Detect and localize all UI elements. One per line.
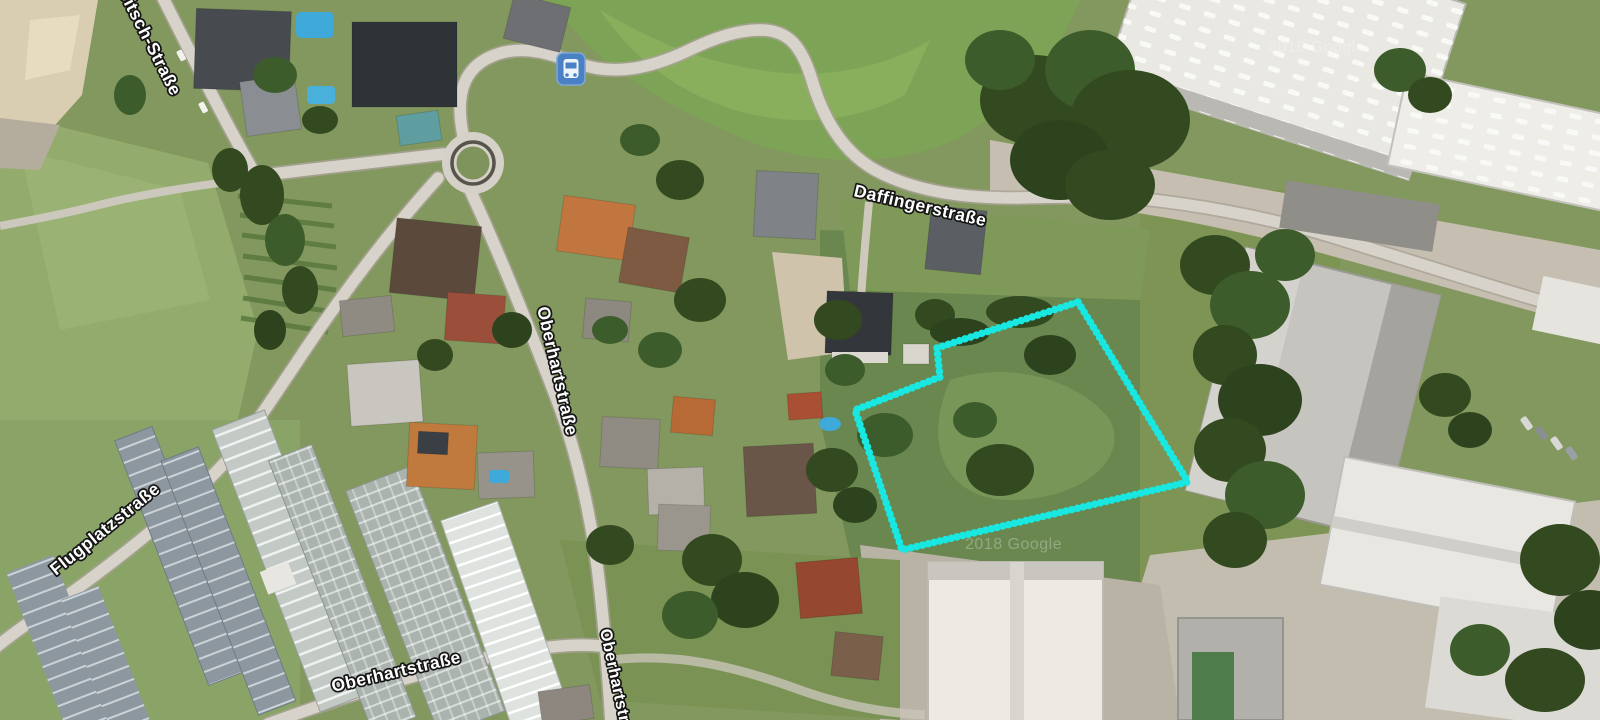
satellite-map[interactable]: lbitsch-Straße Daffingerstraße Oberharts…	[0, 0, 1600, 720]
roundabout	[442, 132, 504, 194]
google-watermark-center: 2018 Google	[965, 536, 1062, 553]
google-watermark-top-right: 2018 Google	[1268, 39, 1365, 56]
bus-stop-icon[interactable]	[557, 53, 585, 85]
